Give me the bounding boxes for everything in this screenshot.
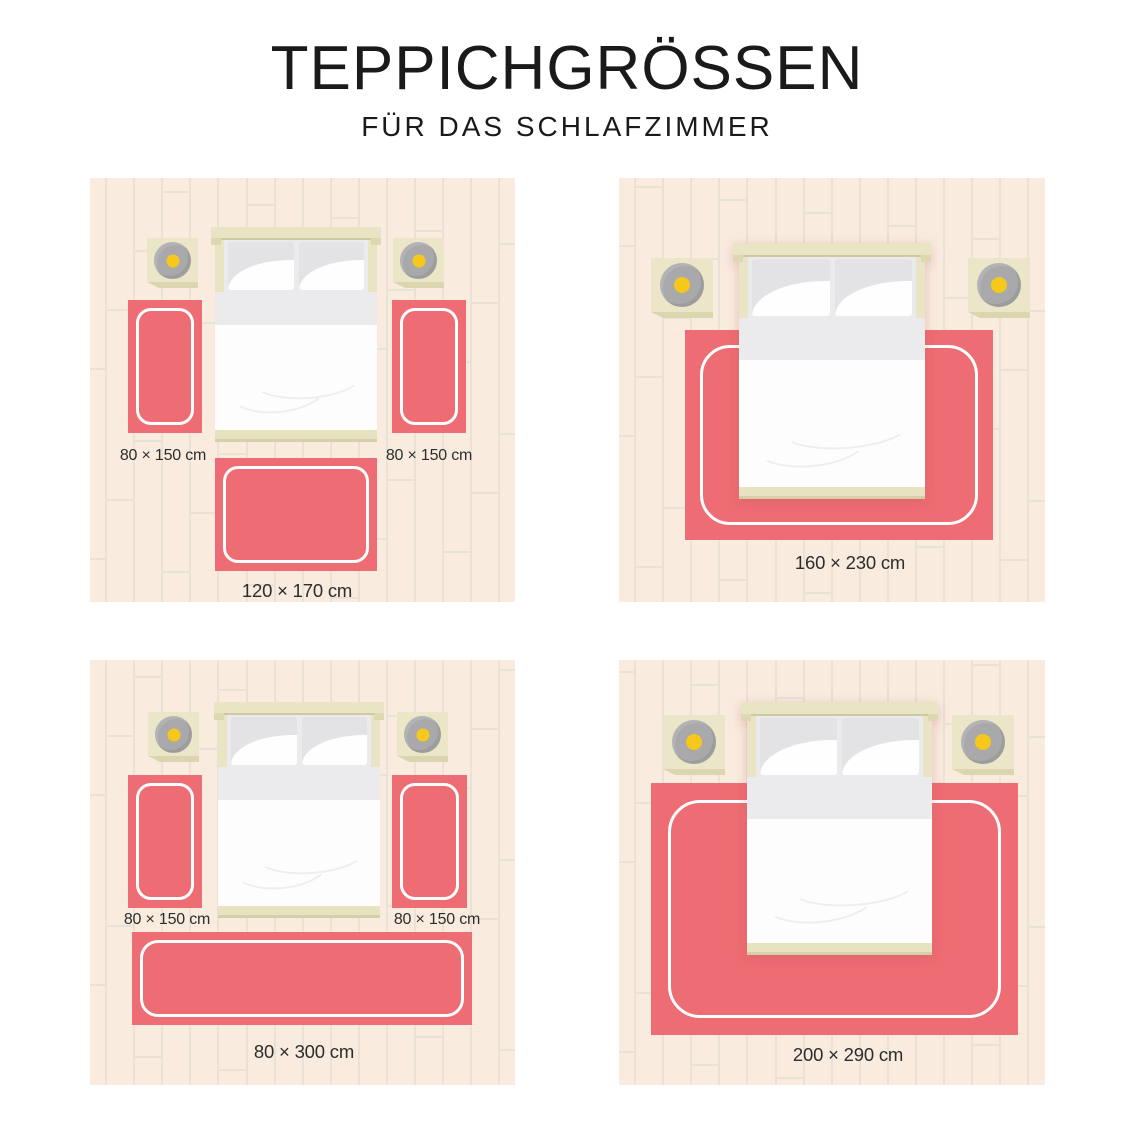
bedroom-panel-3: 80 × 150 cm 80 × 150 cm 80 × 300 cm xyxy=(90,660,515,1085)
lamp-icon xyxy=(155,716,192,753)
lamp-bulb xyxy=(674,277,690,293)
rug-120x170-foot xyxy=(215,458,377,571)
bedroom-panel-4: 200 × 290 cm xyxy=(619,660,1045,1085)
duvet-fold xyxy=(786,857,918,910)
rug-size-label: 80 × 150 cm xyxy=(394,911,480,929)
mattress-top xyxy=(218,713,380,767)
rug-80x300-foot xyxy=(132,932,472,1025)
rug-size-label: 120 × 170 cm xyxy=(242,580,352,602)
lamp-bulb xyxy=(416,728,429,741)
bed xyxy=(218,702,380,918)
pillow-left xyxy=(752,259,830,316)
nightstand-left xyxy=(663,715,725,769)
lamp-icon xyxy=(154,242,191,279)
nightstand-right xyxy=(968,258,1030,312)
lamp-icon xyxy=(977,263,1021,307)
rug-size-label: 80 × 150 cm xyxy=(124,911,210,929)
headboard xyxy=(733,243,931,257)
sheet-fold xyxy=(215,292,377,325)
lamp-icon xyxy=(961,720,1005,764)
duvet xyxy=(215,325,377,430)
pillow-right xyxy=(835,259,913,316)
sheet-fold xyxy=(739,318,925,360)
pillow-left xyxy=(760,718,837,775)
mattress-top xyxy=(747,714,932,777)
lamp-bulb xyxy=(167,728,180,741)
footboard xyxy=(218,906,380,918)
duvet-fold xyxy=(779,400,912,453)
duvet xyxy=(739,360,925,487)
headboard xyxy=(741,702,938,716)
duvet xyxy=(747,819,932,943)
lamp-bulb xyxy=(991,277,1007,293)
header: TEPPICHGRÖSSEN FÜR DAS SCHLAFZIMMER xyxy=(0,0,1134,141)
page-subtitle: FÜR DAS SCHLAFZIMMER xyxy=(0,113,1134,141)
bed xyxy=(747,702,932,955)
mattress-top xyxy=(215,238,377,292)
footboard xyxy=(215,430,377,442)
pillow-area xyxy=(756,714,923,779)
rug-size-label: 160 × 230 cm xyxy=(795,552,905,574)
page-title: TEPPICHGRÖSSEN xyxy=(0,0,1134,100)
pillow-right xyxy=(299,242,365,290)
lamp-bulb xyxy=(166,254,179,267)
rug-size-label: 200 × 290 cm xyxy=(793,1044,903,1066)
bedroom-panel-1: 80 × 150 cm 80 × 150 cm 120 × 170 cm xyxy=(90,178,515,602)
lamp-icon xyxy=(400,242,437,279)
pillow-area xyxy=(227,713,371,769)
rug-80x150-left xyxy=(128,300,202,433)
rug-sizes-infographic: TEPPICHGRÖSSEN FÜR DAS SCHLAFZIMMER xyxy=(0,0,1134,1134)
nightstand-right xyxy=(393,238,444,282)
pillow-left xyxy=(231,717,297,765)
pillow-right xyxy=(842,718,919,775)
bed xyxy=(739,243,925,499)
sheet-fold xyxy=(218,767,380,800)
footboard xyxy=(739,487,925,499)
rug-80x150-right xyxy=(392,300,466,433)
bedroom-panel-2: 160 × 230 cm xyxy=(619,178,1045,602)
nightstand-right xyxy=(952,715,1014,769)
lamp-icon xyxy=(672,720,716,764)
headboard xyxy=(211,227,381,240)
rug-size-label: 80 × 150 cm xyxy=(120,447,206,465)
bed xyxy=(215,227,377,442)
rug-size-label: 80 × 300 cm xyxy=(254,1041,354,1063)
pillow-left xyxy=(228,242,294,290)
mattress-top xyxy=(739,255,925,318)
rug-80x150-left xyxy=(128,775,202,908)
nightstand-left xyxy=(148,712,199,756)
lamp-bulb xyxy=(686,734,702,750)
duvet xyxy=(218,800,380,906)
rug-80x150-right xyxy=(392,775,467,908)
nightstand-right xyxy=(397,712,448,756)
lamp-bulb xyxy=(412,254,425,267)
footboard xyxy=(747,943,932,955)
lamp-bulb xyxy=(975,734,991,750)
pillow-area xyxy=(748,255,916,320)
rug-size-label: 80 × 150 cm xyxy=(386,447,472,465)
headboard xyxy=(214,702,384,715)
nightstand-left xyxy=(147,238,198,282)
pillow-right xyxy=(302,717,368,765)
duvet-fold xyxy=(249,351,365,403)
lamp-icon xyxy=(404,716,441,753)
nightstand-left xyxy=(651,258,713,312)
sheet-fold xyxy=(747,777,932,819)
pillow-area xyxy=(224,238,368,294)
lamp-icon xyxy=(660,263,704,307)
